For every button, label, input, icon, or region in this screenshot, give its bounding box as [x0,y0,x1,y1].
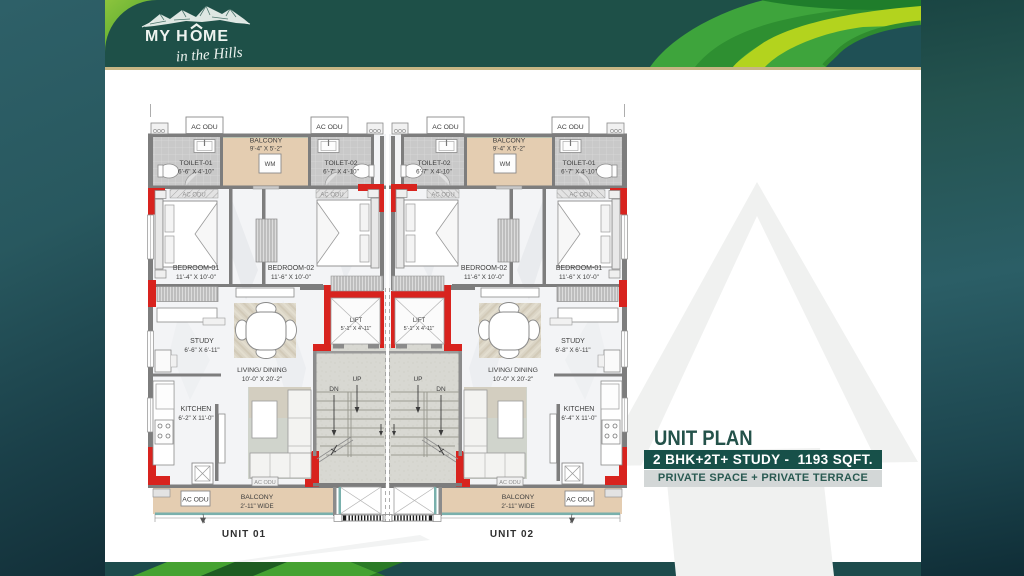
svg-text:LIFT: LIFT [350,318,363,324]
svg-text:TOILET-01: TOILET-01 [179,160,212,167]
svg-text:UNIT 01: UNIT 01 [222,529,266,540]
svg-text:KITCHEN: KITCHEN [564,406,595,413]
svg-text:6'-4" X 11'-0": 6'-4" X 11'-0" [561,415,596,422]
svg-text:STUDY: STUDY [190,338,214,345]
svg-text:10'-0" X 20'-2": 10'-0" X 20'-2" [493,376,533,383]
svg-text:AC ODU: AC ODU [316,124,343,131]
svg-text:DN: DN [329,386,339,393]
svg-text:WM: WM [265,162,276,168]
svg-text:BEDROOM-01: BEDROOM-01 [173,265,219,272]
svg-text:AC ODU: AC ODU [432,124,459,131]
svg-text:9'-4" X 5'-2": 9'-4" X 5'-2" [250,146,282,153]
svg-text:BEDROOM-01: BEDROOM-01 [556,265,602,272]
svg-text:BALCONY: BALCONY [241,494,274,501]
svg-text:9'-4" X 5'-2": 9'-4" X 5'-2" [493,146,525,153]
svg-text:AC ODU: AC ODU [191,124,218,131]
svg-text:LIFT: LIFT [413,318,426,324]
svg-text:2'-11" WIDE: 2'-11" WIDE [501,503,534,510]
svg-text:AC ODU: AC ODU [182,497,209,504]
svg-text:BALCONY: BALCONY [493,138,526,145]
svg-text:TOILET-02: TOILET-02 [417,160,450,167]
svg-text:6'-2" X 11'-0": 6'-2" X 11'-0" [178,415,213,422]
svg-text:WM: WM [500,162,511,168]
svg-text:11'-4" X 10'-0": 11'-4" X 10'-0" [176,274,216,281]
svg-text:AC ODU: AC ODU [557,124,584,131]
svg-text:DN: DN [436,386,446,393]
svg-text:UP: UP [413,376,422,383]
svg-text:LIVING/ DINING: LIVING/ DINING [488,367,538,374]
svg-text:UP: UP [352,376,361,383]
svg-text:AC ODU: AC ODU [320,193,343,199]
svg-text:2'-11" WIDE: 2'-11" WIDE [240,503,273,510]
svg-text:6'-8" X 6'-11": 6'-8" X 6'-11" [555,347,590,354]
svg-text:10'-0" X 20'-2": 10'-0" X 20'-2" [242,376,282,383]
svg-text:AC ODU: AC ODU [182,193,205,199]
svg-text:6'-7" X 4'-10": 6'-7" X 4'-10" [561,169,597,176]
svg-text:6'-7" X 4'-10": 6'-7" X 4'-10" [416,169,452,176]
svg-text:TOILET-01: TOILET-01 [562,160,595,167]
svg-text:UNIT 02: UNIT 02 [490,529,534,540]
svg-text:AC ODU: AC ODU [569,193,592,199]
svg-text:AC ODU: AC ODU [566,497,593,504]
svg-text:AC ODU: AC ODU [254,480,275,486]
svg-text:6'-7" X 4'-10": 6'-7" X 4'-10" [323,169,359,176]
svg-text:6'-6" X 4'-10": 6'-6" X 4'-10" [178,169,214,176]
svg-text:BEDROOM-02: BEDROOM-02 [461,265,507,272]
svg-text:5'-1" X 4'-11": 5'-1" X 4'-11" [341,326,372,332]
svg-text:KITCHEN: KITCHEN [181,406,212,413]
svg-text:5'-1" X 4'-11": 5'-1" X 4'-11" [404,326,435,332]
svg-text:TOILET-02: TOILET-02 [324,160,357,167]
svg-text:6'-6" X 6'-11": 6'-6" X 6'-11" [184,347,219,354]
svg-text:AC ODU: AC ODU [431,193,454,199]
svg-text:LIVING/ DINING: LIVING/ DINING [237,367,287,374]
svg-text:BEDROOM-02: BEDROOM-02 [268,265,314,272]
svg-text:BALCONY: BALCONY [502,494,535,501]
svg-text:BALCONY: BALCONY [250,138,283,145]
svg-text:11'-6" X 10'-0": 11'-6" X 10'-0" [464,274,504,281]
svg-text:11'-6" X 10'-0": 11'-6" X 10'-0" [559,274,599,281]
svg-text:11'-6" X 10'-0": 11'-6" X 10'-0" [271,274,311,281]
svg-text:STUDY: STUDY [561,338,585,345]
svg-text:AC ODU: AC ODU [499,480,520,486]
